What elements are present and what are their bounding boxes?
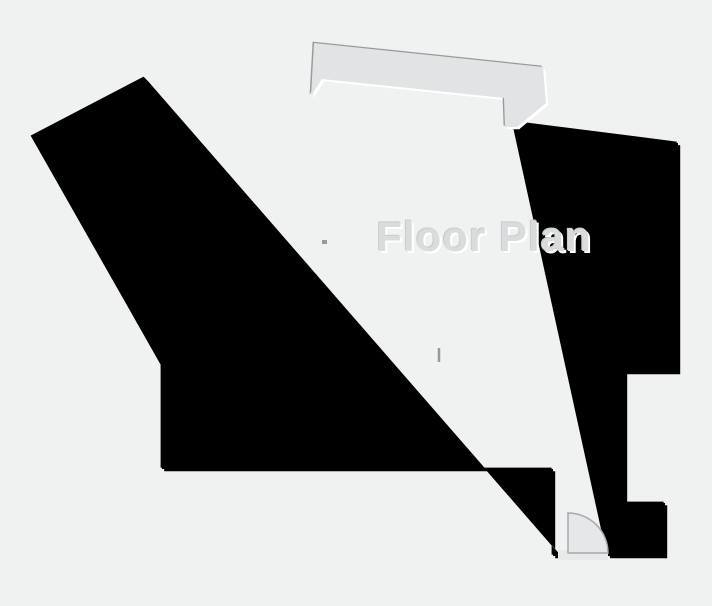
right-wall-notch-upper: [655, 216, 675, 228]
top-thick-band-wall: [311, 43, 546, 127]
exterior-wall-top-left: [144, 77, 309, 91]
walls-layer: [31, 42, 681, 559]
exterior-wall-top-left: [145, 78, 310, 92]
exterior-wall-top-left: [147, 80, 312, 94]
floor-plan-canvas: [0, 0, 712, 606]
exterior-wall-left-bottom: [32, 78, 561, 556]
right-wall-notch-lower: [655, 277, 675, 289]
floor-plan: Floor Plan: [0, 0, 712, 606]
floor-plan-title: Floor Plan: [376, 213, 591, 261]
